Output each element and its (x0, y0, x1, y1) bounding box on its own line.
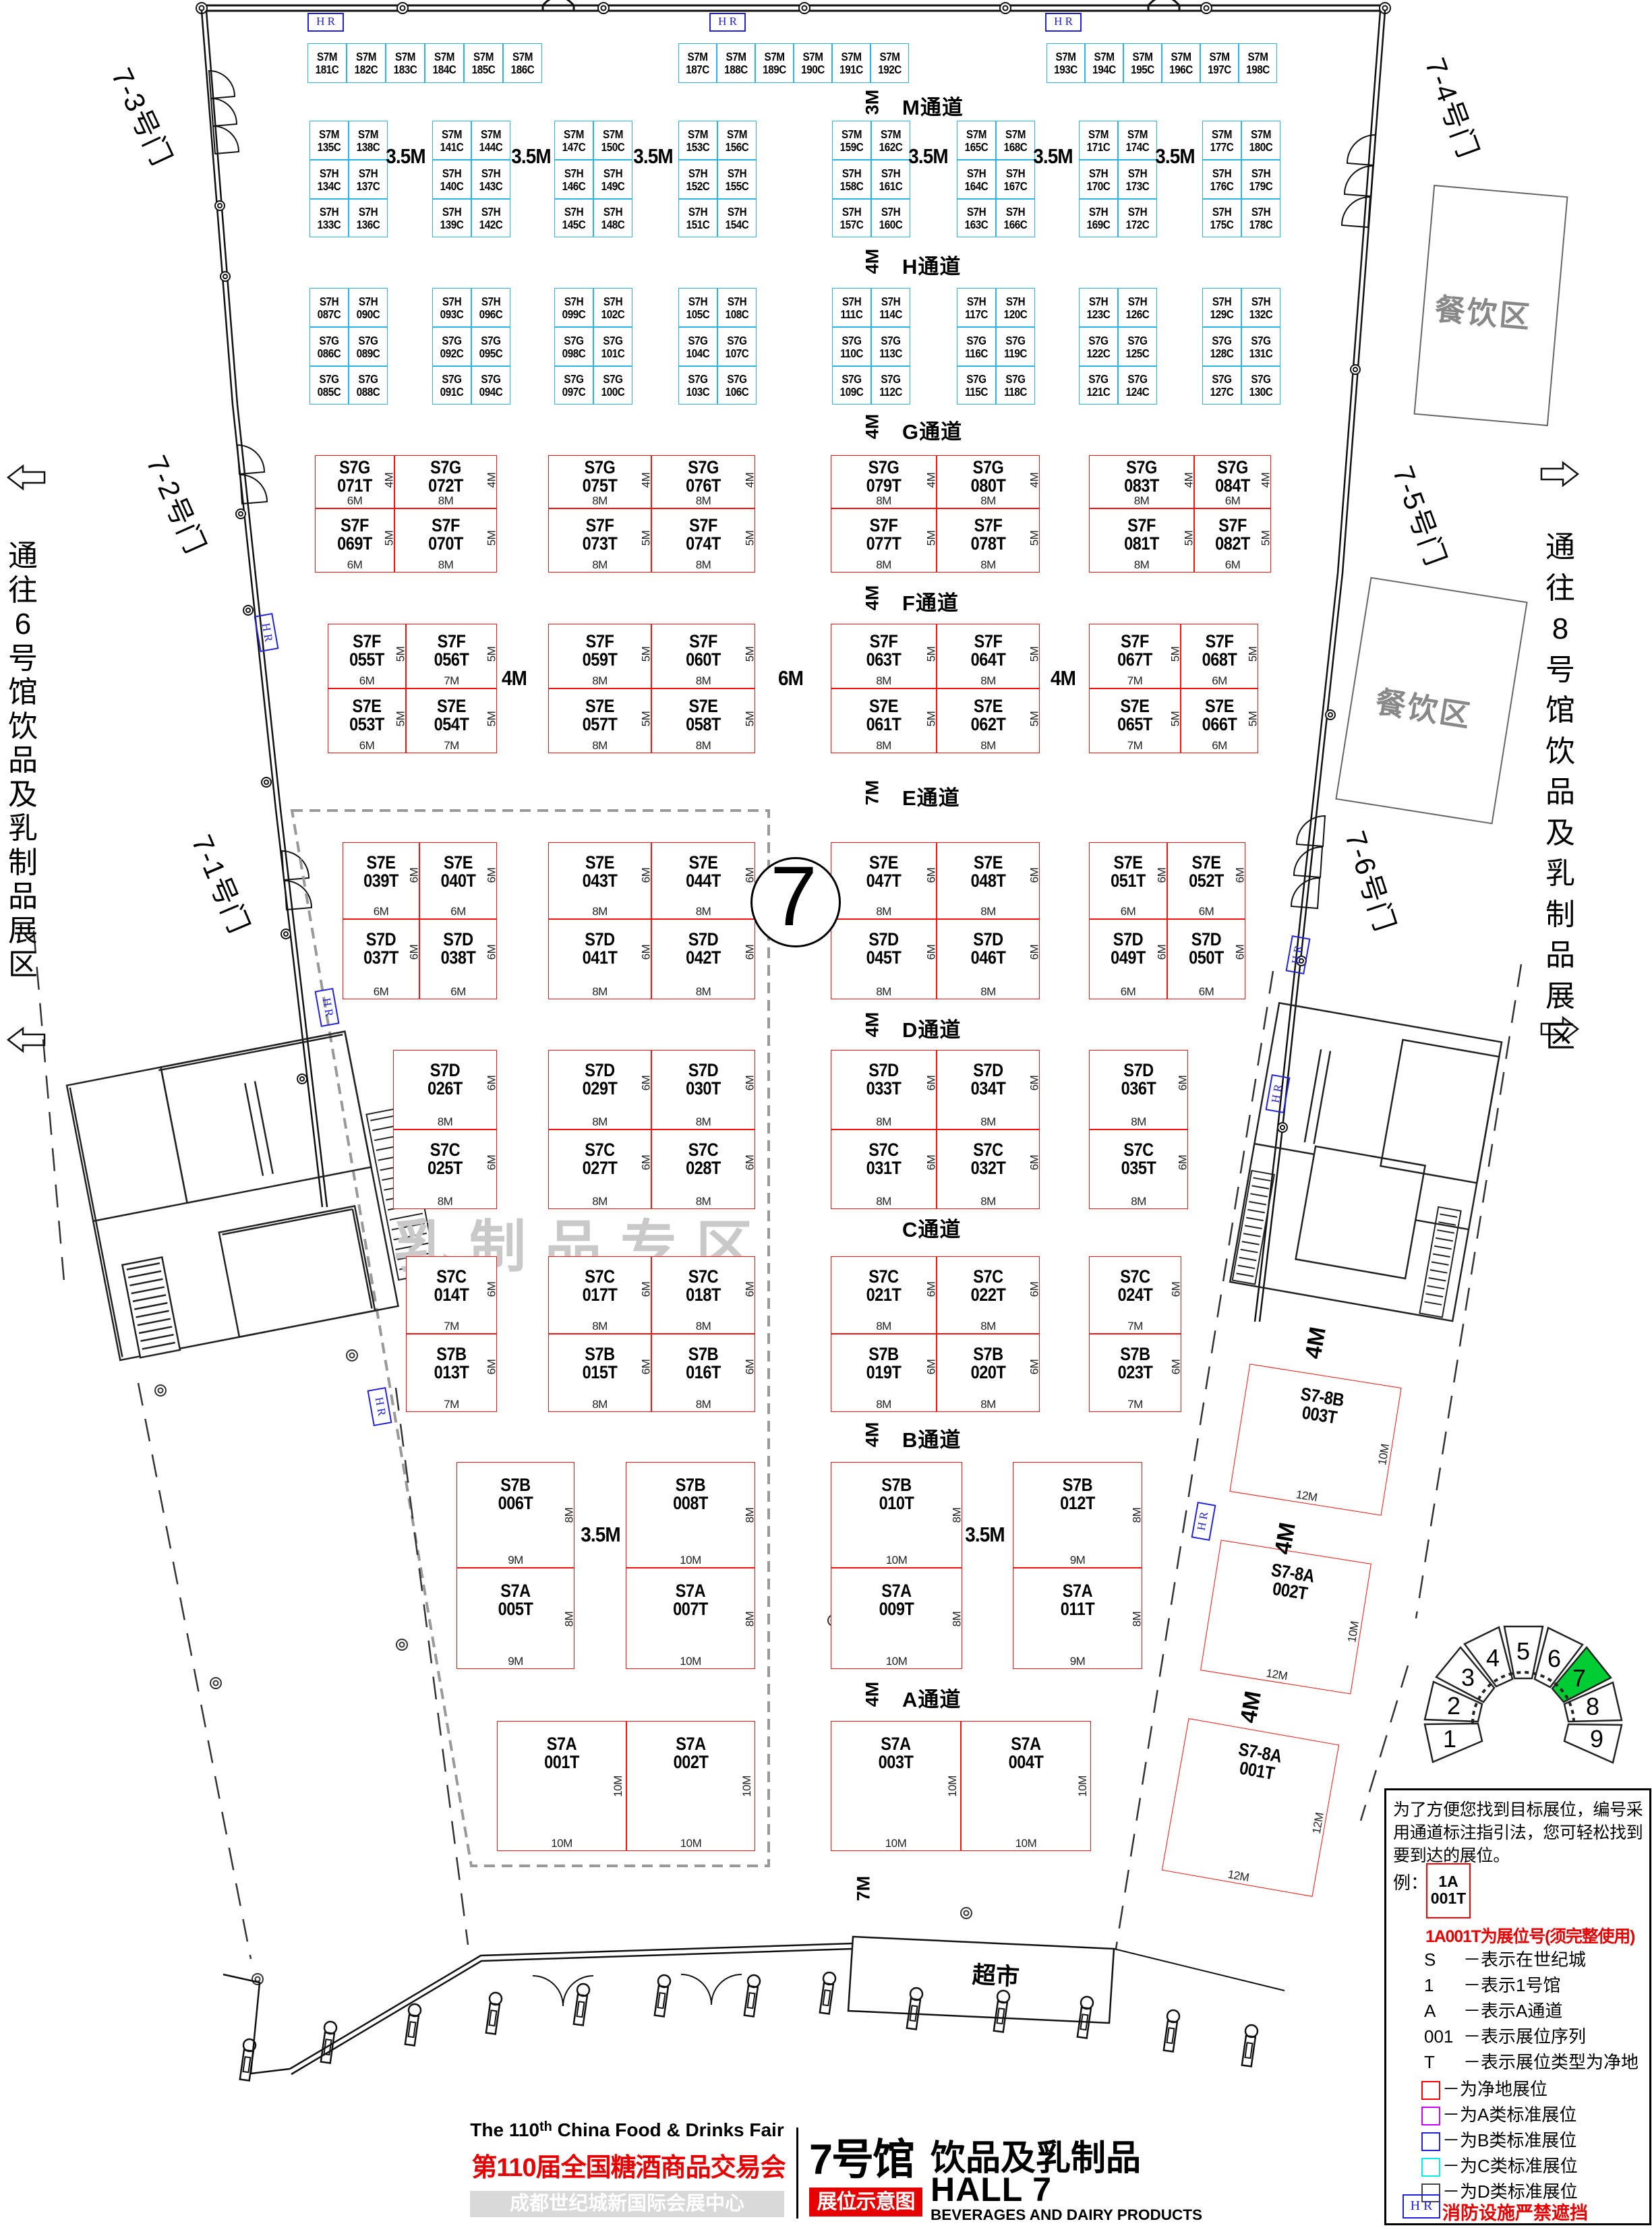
svg-text:6: 6 (1547, 1645, 1561, 1672)
svg-text:7: 7 (1572, 1664, 1586, 1692)
svg-text:3: 3 (1461, 1664, 1475, 1691)
svg-text:2: 2 (1447, 1692, 1461, 1720)
svg-text:5: 5 (1516, 1637, 1530, 1665)
svg-text:4: 4 (1486, 1644, 1500, 1672)
svg-text:1: 1 (1443, 1725, 1456, 1753)
svg-text:8: 8 (1586, 1693, 1599, 1720)
svg-text:9: 9 (1590, 1725, 1603, 1753)
